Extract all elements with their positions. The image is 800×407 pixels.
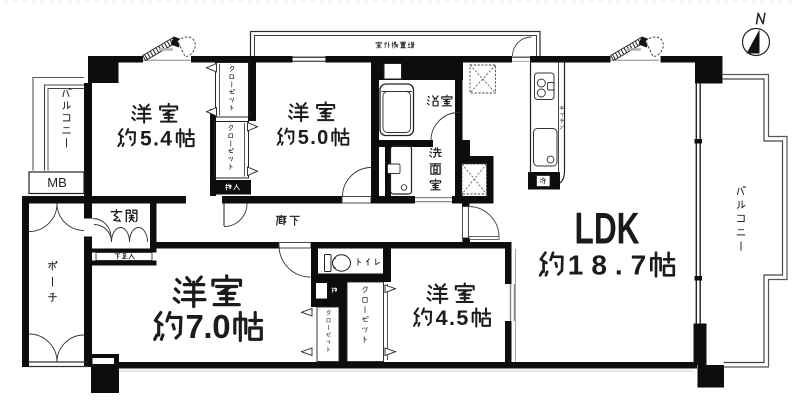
svg-text:7.0: 7.0 [185, 308, 230, 345]
svg-text:5.0: 5.0 [298, 127, 328, 149]
svg-text:MB: MB [47, 175, 67, 190]
svg-text:LDK: LDK [575, 205, 640, 254]
svg-text:4.5: 4.5 [436, 306, 469, 330]
svg-text:5.4: 5.4 [140, 128, 172, 151]
